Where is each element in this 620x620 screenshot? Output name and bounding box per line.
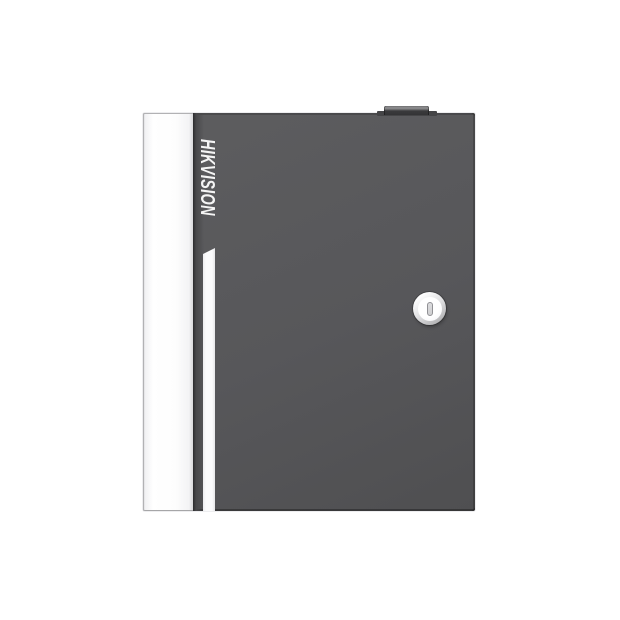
product-photo: HIKVISION: [0, 0, 620, 620]
brand-logo: HIKVISION: [197, 139, 217, 216]
accent-stripe: [203, 248, 215, 511]
hinge-panel: [143, 113, 193, 511]
cam-lock: [413, 292, 446, 325]
top-knockout-tab: [384, 106, 429, 115]
enclosure: HIKVISION: [143, 113, 475, 511]
lock-face: [418, 297, 442, 321]
keyhole-slot-icon: [427, 302, 433, 316]
